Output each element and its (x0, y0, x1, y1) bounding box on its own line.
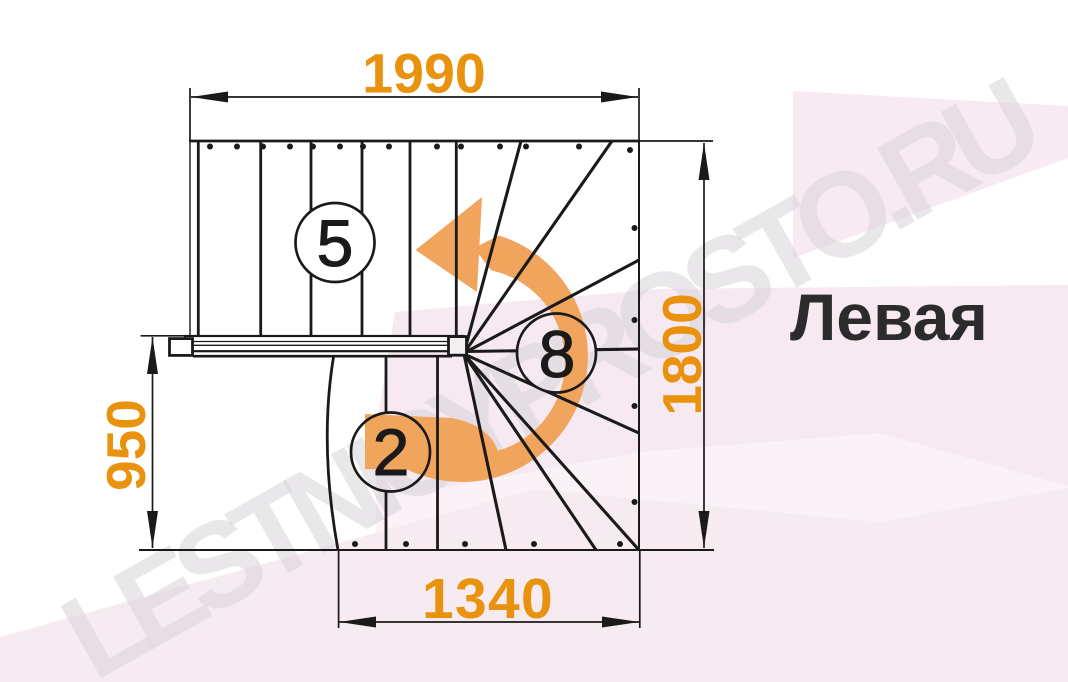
svg-text:1800: 1800 (651, 293, 713, 415)
svg-text:Левая: Левая (790, 280, 988, 354)
svg-text:2: 2 (373, 415, 410, 489)
svg-text:950: 950 (95, 399, 157, 491)
svg-text:5: 5 (317, 206, 354, 280)
svg-text:1990: 1990 (362, 43, 485, 105)
svg-text:1340: 1340 (422, 567, 554, 631)
svg-text:8: 8 (539, 317, 576, 391)
